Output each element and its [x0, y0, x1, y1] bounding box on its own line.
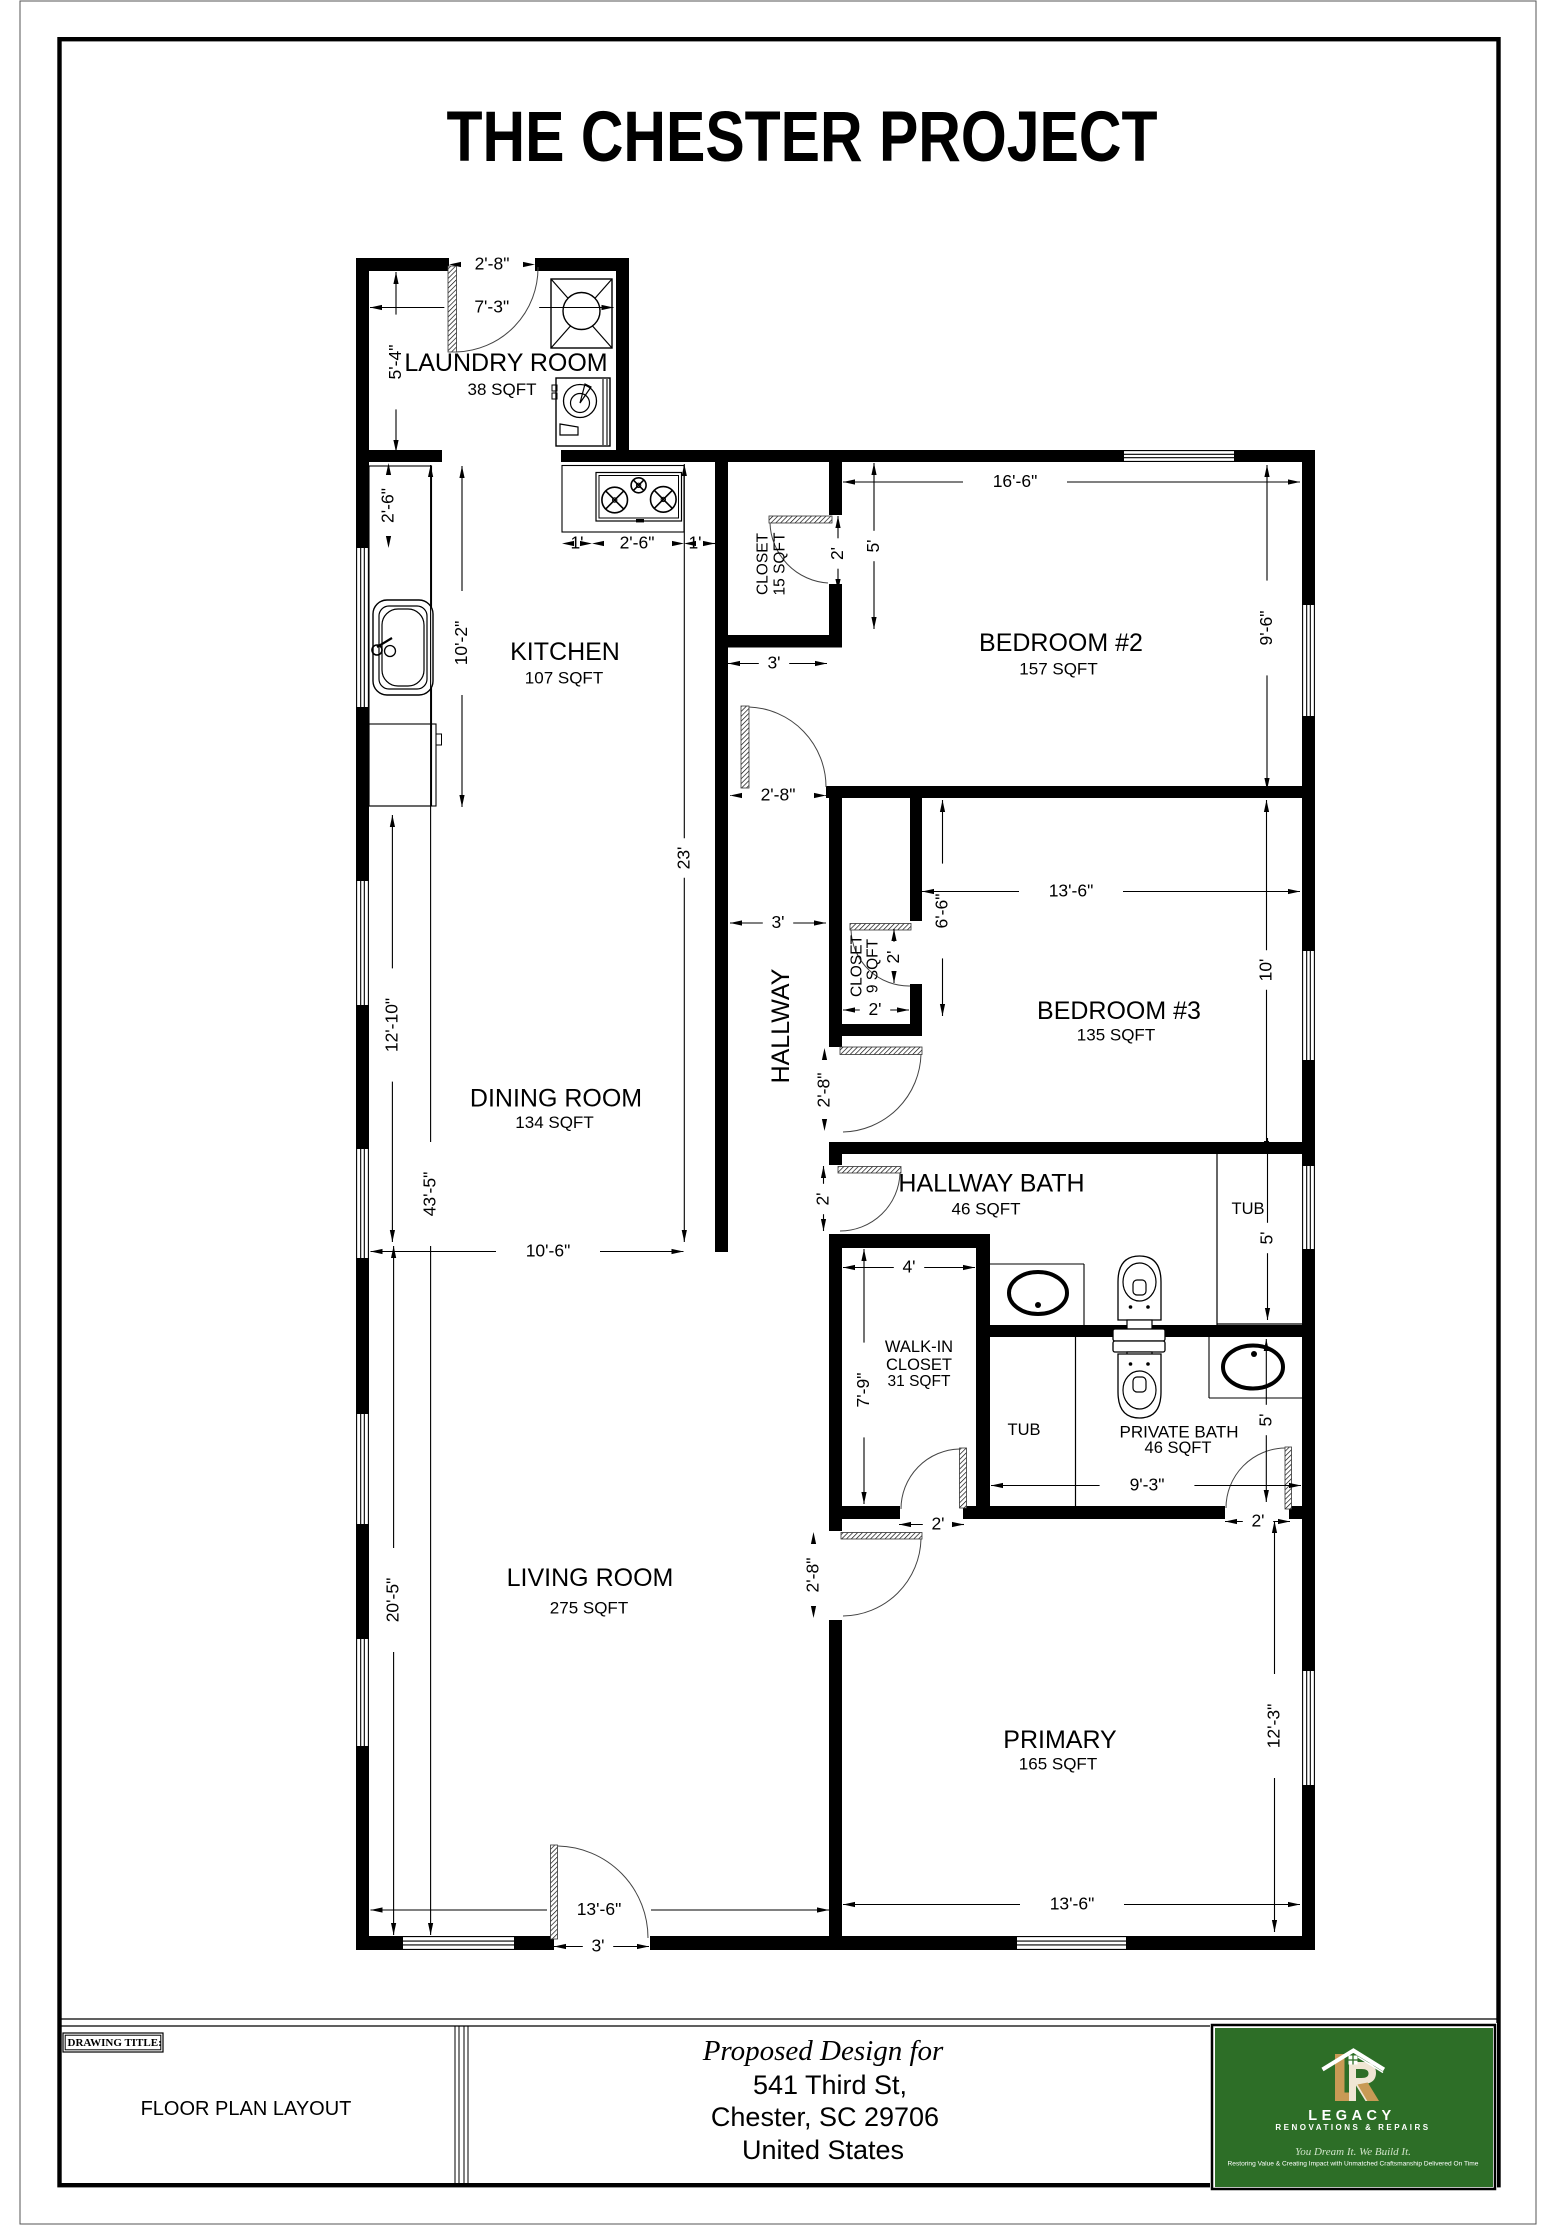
svg-text:9'-6": 9'-6" [1256, 611, 1276, 646]
svg-text:7'-9": 7'-9" [853, 1373, 873, 1408]
svg-text:157 SQFT: 157 SQFT [1019, 660, 1097, 679]
svg-text:United States: United States [742, 2135, 904, 2165]
svg-text:165 SQFT: 165 SQFT [1019, 1755, 1097, 1774]
svg-text:13'-6": 13'-6" [577, 1899, 622, 1919]
svg-text:10'-6": 10'-6" [526, 1241, 571, 1261]
svg-text:BEDROOM #3: BEDROOM #3 [1037, 997, 1201, 1025]
svg-text:LAUNDRY ROOM: LAUNDRY ROOM [404, 349, 607, 377]
svg-text:135 SQFT: 135 SQFT [1077, 1026, 1155, 1045]
svg-text:2': 2' [931, 1514, 944, 1534]
svg-text:7'-3": 7'-3" [474, 297, 509, 317]
svg-text:RENOVATIONS & REPAIRS: RENOVATIONS & REPAIRS [1275, 2123, 1430, 2132]
svg-text:5': 5' [1257, 1231, 1277, 1244]
svg-text:13'-6": 13'-6" [1049, 881, 1094, 901]
svg-text:134 SQFT: 134 SQFT [515, 1113, 593, 1132]
svg-text:4': 4' [902, 1257, 915, 1277]
svg-text:9'-3": 9'-3" [1130, 1475, 1165, 1495]
svg-text:BEDROOM #2: BEDROOM #2 [979, 629, 1143, 657]
svg-text:31 SQFT: 31 SQFT [888, 1373, 951, 1390]
svg-text:LEGACY: LEGACY [1308, 2108, 1395, 2124]
svg-text:9 SQFT: 9 SQFT [865, 938, 882, 993]
svg-text:23': 23' [673, 847, 693, 870]
svg-text:Chester, SC 29706: Chester, SC 29706 [711, 2102, 939, 2132]
svg-text:Restoring Value & Creating Imp: Restoring Value & Creating Impact with U… [1228, 2161, 1479, 2168]
svg-text:2': 2' [868, 999, 881, 1019]
svg-text:Proposed Design for: Proposed Design for [702, 2035, 944, 2067]
svg-text:CLOSET: CLOSET [886, 1356, 952, 1374]
svg-text:46 SQFT: 46 SQFT [1145, 1439, 1212, 1457]
svg-text:THE CHESTER PROJECT: THE CHESTER PROJECT [447, 97, 1158, 177]
svg-text:2'-8": 2'-8" [761, 785, 796, 805]
svg-text:2'-6": 2'-6" [378, 488, 398, 523]
svg-text:2': 2' [883, 950, 903, 963]
svg-text:TUB: TUB [1008, 1421, 1041, 1439]
svg-text:2': 2' [813, 1192, 833, 1205]
svg-text:3': 3' [591, 1936, 604, 1956]
svg-text:10': 10' [1256, 959, 1276, 982]
svg-text:HALLWAY BATH: HALLWAY BATH [898, 1170, 1084, 1198]
svg-text:3': 3' [767, 653, 780, 673]
svg-text:5': 5' [863, 539, 883, 552]
svg-text:6'-6": 6'-6" [932, 894, 952, 929]
svg-text:5': 5' [1255, 1413, 1275, 1426]
svg-text:5'-4": 5'-4" [385, 345, 405, 380]
svg-text:PRIMARY: PRIMARY [1003, 1726, 1117, 1754]
svg-text:16'-6": 16'-6" [993, 471, 1038, 491]
svg-text:107 SQFT: 107 SQFT [525, 669, 603, 688]
svg-text:DINING ROOM: DINING ROOM [470, 1085, 642, 1113]
svg-text:2'-8": 2'-8" [475, 254, 510, 274]
svg-text:LIVING ROOM: LIVING ROOM [507, 1564, 674, 1592]
svg-text:DRAWING TITLE:: DRAWING TITLE: [68, 2037, 162, 2049]
svg-text:43'-5": 43'-5" [420, 1172, 440, 1217]
svg-text:541 Third St,: 541 Third St, [753, 2070, 907, 2100]
svg-text:12'-10": 12'-10" [381, 998, 401, 1052]
svg-text:3': 3' [771, 912, 784, 932]
svg-text:WALK-IN: WALK-IN [885, 1338, 953, 1356]
svg-text:2'-8": 2'-8" [814, 1073, 834, 1108]
svg-text:FLOOR PLAN LAYOUT: FLOOR PLAN LAYOUT [141, 2098, 352, 2120]
svg-text:2'-8": 2'-8" [803, 1558, 823, 1593]
svg-text:2': 2' [1251, 1511, 1264, 1531]
svg-text:CLOSET: CLOSET [755, 532, 772, 595]
svg-text:20'-5": 20'-5" [383, 1578, 403, 1623]
svg-text:15 SQFT: 15 SQFT [772, 532, 789, 595]
svg-text:KITCHEN: KITCHEN [510, 638, 620, 666]
svg-text:TUB: TUB [1232, 1200, 1265, 1218]
svg-text:275 SQFT: 275 SQFT [550, 1599, 628, 1618]
svg-text:10'-2": 10'-2" [451, 621, 471, 666]
svg-text:2'-6": 2'-6" [620, 533, 655, 553]
svg-text:HALLWAY: HALLWAY [767, 968, 795, 1083]
svg-text:46 SQFT: 46 SQFT [952, 1200, 1021, 1219]
svg-text:You Dream It. We Build It.: You Dream It. We Build It. [1295, 2146, 1411, 2158]
svg-text:12'-3": 12'-3" [1264, 1704, 1284, 1749]
svg-text:38 SQFT: 38 SQFT [468, 380, 537, 399]
svg-text:CLOSET: CLOSET [849, 934, 866, 997]
svg-text:2': 2' [827, 547, 847, 560]
svg-text:13'-6": 13'-6" [1050, 1894, 1095, 1914]
